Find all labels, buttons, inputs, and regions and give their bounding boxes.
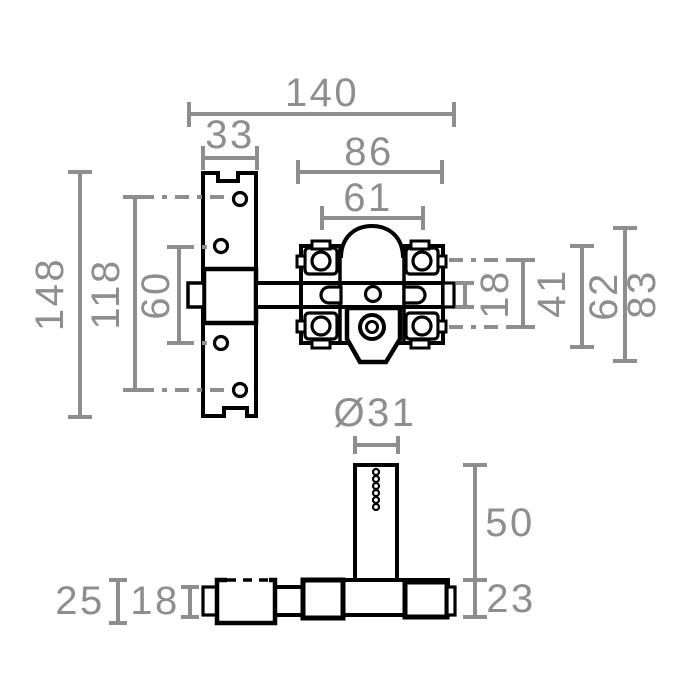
dim-line-keeper-thickness <box>109 580 127 623</box>
screw-hole <box>413 252 431 270</box>
keeper-tab <box>188 283 204 307</box>
dim-label-body-width: 86 <box>344 130 394 174</box>
dim-label-cylinder-height: 50 <box>485 501 535 545</box>
fixing-tab <box>438 321 446 332</box>
dim-line-bolt-height <box>456 283 474 307</box>
pin-dot <box>373 504 379 510</box>
bolt-tip-side-right <box>447 587 455 615</box>
fixing-tab <box>297 256 305 267</box>
base-block-right <box>405 582 447 617</box>
dim-label-plate-width: 33 <box>205 113 255 157</box>
fixing-tab <box>312 340 330 348</box>
center-hole <box>366 287 381 302</box>
dim-label-screw-span-width: 61 <box>343 176 393 220</box>
front-view: 140 33 86 61 148 118 60 18 41 62 83 <box>28 71 664 417</box>
bolt-slot-left <box>321 287 341 303</box>
dim-label-body-screw-span: 41 <box>530 268 574 318</box>
dim-line-cylinder-height-base <box>463 465 487 617</box>
pin-dot <box>373 469 379 475</box>
dim-line-cylinder-diameter <box>355 436 398 454</box>
bolt-slot-right <box>404 287 425 303</box>
screw-hole <box>215 240 228 253</box>
pin-dot <box>373 490 379 496</box>
base-assembly <box>203 580 455 623</box>
dim-label-body-total-height: 83 <box>620 269 664 319</box>
fixing-tab <box>411 241 429 249</box>
arch-dome <box>341 226 403 258</box>
lock-body <box>297 226 454 362</box>
keeper-box-side <box>217 580 275 623</box>
bolt-tip-right <box>443 283 454 307</box>
side-view: Ø31 50 23 25 18 <box>55 391 536 623</box>
fixing-tab <box>411 340 429 348</box>
screw-hole <box>234 193 247 206</box>
bolt-bar <box>256 283 301 307</box>
dim-label-cylinder-diameter: Ø31 <box>333 391 416 435</box>
dim-label-outer-screw-span: 118 <box>84 258 128 329</box>
technical-drawing-lock: 140 33 86 61 148 118 60 18 41 62 83 <box>0 0 700 700</box>
fixing-tab <box>297 321 305 332</box>
keeper-box <box>204 269 256 323</box>
pin-dot <box>373 476 379 482</box>
base-block-left <box>303 580 343 618</box>
fixing-tab <box>312 241 330 249</box>
dim-label-keeper-thickness: 25 <box>55 579 105 623</box>
cylinder-ring-inner <box>367 322 378 333</box>
drawing-canvas: 140 33 86 61 148 118 60 18 41 62 83 <box>0 0 700 700</box>
dim-label-plate-height: 148 <box>28 257 72 331</box>
fixing-tab <box>438 256 446 267</box>
dim-label-inner-screw-span: 60 <box>134 270 178 320</box>
dim-label-bolt-height: 18 <box>473 269 517 319</box>
screw-hole <box>234 384 247 397</box>
dim-line-bolt-thickness <box>181 587 199 617</box>
cylinder-pin-dots <box>373 469 379 510</box>
screw-hole <box>312 252 330 270</box>
screw-hole <box>215 337 228 350</box>
screw-hole <box>312 317 330 335</box>
dim-label-bolt-thickness: 18 <box>130 579 180 623</box>
screw-hole <box>413 317 431 335</box>
dim-label-base-thickness: 23 <box>486 577 536 621</box>
dim-label-total-width: 140 <box>285 71 359 115</box>
strike-plate <box>188 173 256 416</box>
pin-dot <box>373 497 379 503</box>
pin-dot <box>373 483 379 489</box>
